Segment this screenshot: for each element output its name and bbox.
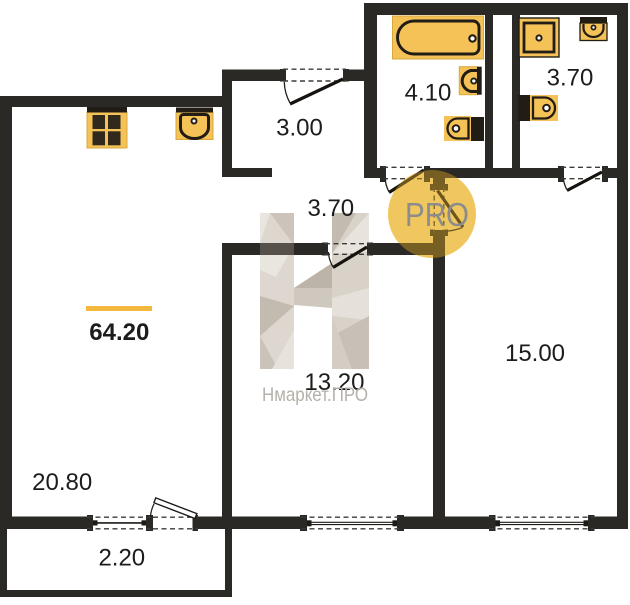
svg-text:Нмаркет.ПРО: Нмаркет.ПРО [262, 384, 368, 406]
svg-text:15.00: 15.00 [505, 340, 565, 367]
svg-text:3.70: 3.70 [307, 195, 354, 222]
svg-text:64.20: 64.20 [89, 319, 149, 346]
svg-text:2.20: 2.20 [98, 545, 145, 572]
svg-text:PRO: PRO [405, 196, 469, 233]
svg-text:20.80: 20.80 [32, 469, 92, 496]
svg-text:4.10: 4.10 [405, 80, 452, 107]
svg-text:3.70: 3.70 [547, 65, 594, 92]
svg-text:3.00: 3.00 [276, 115, 323, 142]
